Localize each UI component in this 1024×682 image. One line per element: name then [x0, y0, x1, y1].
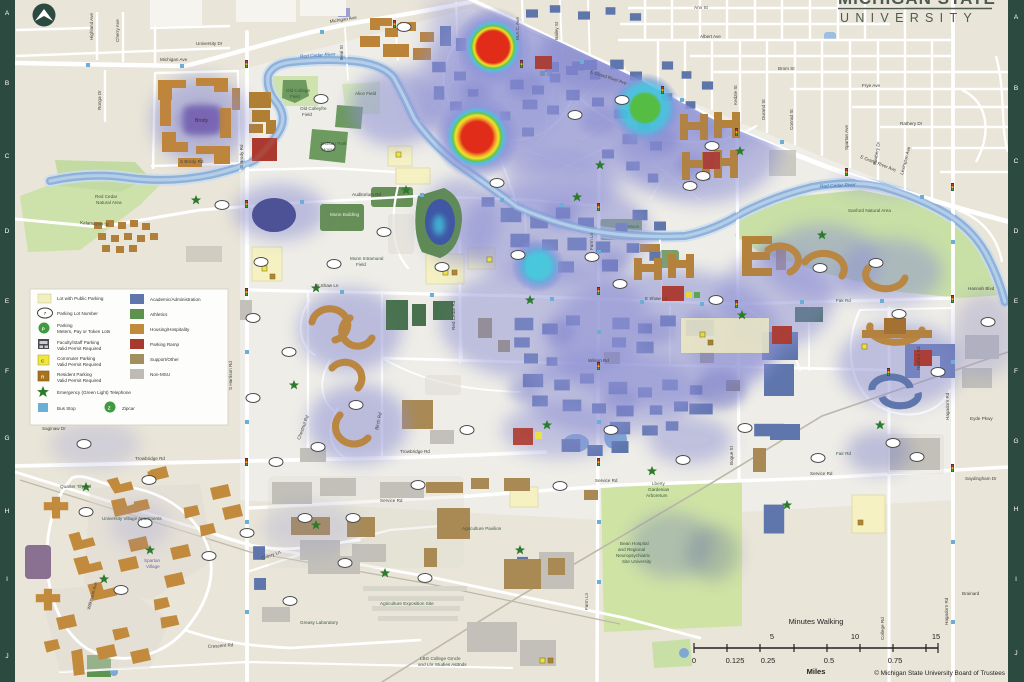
svg-text:Beal St: Beal St	[339, 44, 344, 60]
svg-text:E: E	[5, 298, 10, 305]
svg-text:University Village Apartments: University Village Apartments	[102, 516, 162, 521]
svg-text:Auditorium Rd: Auditorium Rd	[352, 192, 382, 197]
svg-text:P: P	[42, 327, 45, 332]
svg-text:Agriculture Pavilion: Agriculture Pavilion	[462, 526, 502, 531]
svg-text:G: G	[4, 435, 9, 442]
svg-text:B: B	[1014, 85, 1018, 92]
svg-text:© Michigan State University Bo: © Michigan State University Board of Tru…	[874, 669, 1005, 677]
svg-text:Alice Field: Alice Field	[355, 91, 377, 96]
svg-text:7: 7	[44, 311, 47, 316]
svg-text:H: H	[5, 508, 10, 515]
svg-text:House: House	[322, 147, 336, 152]
svg-text:Service Rd: Service Rd	[380, 498, 403, 503]
svg-text:Non-MSU: Non-MSU	[150, 372, 170, 377]
svg-text:Munn Intramural: Munn Intramural	[350, 256, 383, 261]
svg-text:Farm Ln: Farm Ln	[589, 232, 594, 250]
svg-text:Bogue St: Bogue St	[729, 445, 734, 465]
svg-text:Wilson Rd: Wilson Rd	[588, 358, 609, 363]
svg-text:E: E	[1014, 298, 1019, 305]
svg-text:0.125: 0.125	[726, 656, 745, 665]
svg-text:Academic/Administration: Academic/Administration	[150, 297, 201, 302]
svg-text:Emergency (Green Light) Teleph: Emergency (Green Light) Telephone	[57, 390, 131, 395]
svg-text:Site University: Site University	[622, 559, 652, 564]
svg-text:Rathery Dr: Rathery Dr	[900, 121, 923, 126]
svg-text:Greasy Laboratory: Greasy Laboratory	[300, 620, 339, 625]
svg-text:Kedzie St: Kedzie St	[733, 85, 738, 105]
svg-text:5: 5	[770, 632, 774, 641]
svg-text:Parking Ramp: Parking Ramp	[150, 342, 180, 347]
svg-text:A: A	[1014, 14, 1019, 21]
svg-text:MICHIGAN STATE: MICHIGAN STATE	[838, 0, 996, 8]
svg-text:Lot with Public Parking: Lot with Public Parking	[57, 296, 104, 301]
svg-text:E Shaw Ln: E Shaw Ln	[645, 296, 668, 301]
svg-text:Frye Ave: Frye Ave	[862, 83, 880, 88]
svg-text:Jenison Park: Jenison Park	[320, 141, 347, 146]
svg-text:Munn: Munn	[628, 224, 640, 229]
svg-text:Arboretum: Arboretum	[646, 493, 668, 498]
svg-text:Village: Village	[146, 564, 160, 569]
svg-text:Athletics: Athletics	[150, 312, 168, 317]
svg-text:Spartan Ave: Spartan Ave	[844, 125, 849, 150]
svg-text:Parking: Parking	[57, 323, 73, 328]
svg-text:Hannah Blvd: Hannah Blvd	[968, 286, 995, 291]
svg-text:and Lhr Studies Asttnds: and Lhr Studies Asttnds	[418, 662, 467, 667]
svg-text:Bailey St: Bailey St	[554, 21, 559, 40]
svg-text:Field: Field	[356, 262, 366, 267]
svg-text:University Dr: University Dr	[196, 41, 223, 46]
svg-text:College Rd: College Rd	[880, 617, 885, 640]
svg-text:C: C	[5, 153, 10, 160]
svg-text:Brainard: Brainard	[962, 591, 980, 596]
svg-text:A: A	[5, 10, 10, 17]
svg-text:Trowbridge Rd: Trowbridge Rd	[400, 449, 430, 454]
svg-text:UNIVERSITY: UNIVERSITY	[840, 11, 978, 25]
svg-text:Parking Lot Number: Parking Lot Number	[57, 311, 98, 316]
svg-text:and Regional: and Regional	[618, 547, 645, 552]
svg-text:Fair Rd: Fair Rd	[836, 451, 852, 456]
svg-text:S Brody Rd: S Brody Rd	[239, 144, 244, 168]
svg-text:Cherry Ave: Cherry Ave	[115, 19, 120, 42]
svg-text:Farm Ln: Farm Ln	[584, 592, 589, 610]
svg-text:Red Cedar: Red Cedar	[95, 194, 118, 199]
svg-text:Rudford Rd: Rudford Rd	[916, 346, 921, 370]
svg-text:H: H	[1014, 506, 1019, 513]
svg-text:Trowbridge Rd: Trowbridge Rd	[135, 456, 165, 461]
svg-text:S Brody Rd: S Brody Rd	[180, 159, 204, 164]
svg-text:0.5: 0.5	[824, 656, 834, 665]
svg-text:Service Rd: Service Rd	[595, 478, 618, 483]
svg-text:15: 15	[932, 632, 940, 641]
svg-text:Miles: Miles	[807, 667, 826, 676]
svg-text:G: G	[1013, 438, 1018, 445]
svg-text:Valid Permit Required: Valid Permit Required	[57, 346, 102, 351]
svg-text:0.75: 0.75	[888, 656, 903, 665]
svg-text:Quarter Tily Rd: Quarter Tily Rd	[60, 484, 91, 489]
svg-text:Fak Rd: Fak Rd	[836, 298, 851, 303]
svg-text:Saginaw Dr: Saginaw Dr	[42, 426, 66, 431]
svg-text:Hagadorn Rd: Hagadorn Rd	[945, 392, 950, 420]
svg-text:Bus Stop: Bus Stop	[57, 406, 76, 411]
svg-text:Saydingham Dr: Saydingham Dr	[965, 476, 997, 481]
svg-text:Old Colleyfre: Old Colleyfre	[300, 106, 327, 111]
svg-text:F: F	[1014, 368, 1018, 375]
svg-text:F: F	[5, 368, 9, 375]
svg-text:Valid Permit Required: Valid Permit Required	[57, 362, 102, 367]
svg-text:Minutes Walking: Minutes Walking	[789, 617, 844, 626]
svg-text:Gardenias: Gardenias	[648, 487, 670, 492]
svg-text:Faculty/Staff Parking: Faculty/Staff Parking	[57, 340, 100, 345]
svg-text:Valid Permit Required: Valid Permit Required	[57, 378, 102, 383]
svg-text:Lberty: Lberty	[652, 481, 665, 486]
svg-text:D: D	[5, 228, 10, 235]
svg-text:Natural Area: Natural Area	[96, 200, 122, 205]
svg-text:0: 0	[692, 656, 696, 665]
svg-text:LBG College Gmcle: LBG College Gmcle	[420, 656, 461, 661]
svg-text:0.25: 0.25	[761, 656, 776, 665]
svg-text:Agriculture Exposition Site: Agriculture Exposition Site	[380, 601, 434, 606]
svg-text:Neuropsychiatric: Neuropsychiatric	[616, 553, 651, 558]
svg-text:Red Cedar Rd: Red Cedar Rd	[451, 300, 456, 330]
svg-text:Bean Hospital: Bean Hospital	[620, 541, 649, 546]
svg-text:Albert Ave: Albert Ave	[700, 34, 721, 39]
svg-text:Brom St: Brom St	[778, 66, 795, 71]
svg-text:Housing/Hospitality: Housing/Hospitality	[150, 327, 190, 332]
svg-text:I: I	[1015, 576, 1017, 583]
svg-text:Sanford Natural Area: Sanford Natural Area	[848, 208, 891, 213]
svg-text:D: D	[1014, 228, 1019, 235]
svg-text:Durand St: Durand St	[761, 99, 766, 120]
svg-text:Field: Field	[290, 94, 300, 99]
svg-text:Eyde Pkwy: Eyde Pkwy	[970, 416, 993, 421]
svg-text:B: B	[5, 80, 9, 87]
svg-text:10: 10	[851, 632, 859, 641]
svg-text:Meters, Pay or Token Lots: Meters, Pay or Token Lots	[57, 329, 111, 334]
svg-text:Zipcar: Zipcar	[122, 406, 135, 411]
svg-text:Brody: Brody	[195, 118, 209, 124]
svg-text:Michigan Ave: Michigan Ave	[160, 57, 188, 62]
svg-text:W Shaw Ln: W Shaw Ln	[315, 283, 339, 288]
svg-text:Munn Building: Munn Building	[330, 212, 360, 217]
svg-text:J: J	[1014, 650, 1017, 657]
svg-text:Spartan: Spartan	[144, 558, 161, 563]
svg-text:S Harrison Rd: S Harrison Rd	[228, 361, 233, 390]
svg-text:Field: Field	[302, 112, 312, 117]
svg-text:M.A.C. Ave: M.A.C. Ave	[515, 17, 520, 40]
svg-text:Service Rd: Service Rd	[810, 471, 833, 476]
svg-text:C: C	[1014, 158, 1019, 165]
svg-text:Conrad St: Conrad St	[789, 109, 794, 130]
svg-text:J: J	[5, 653, 8, 660]
svg-text:Resident Parking: Resident Parking	[57, 372, 92, 377]
svg-text:Z: Z	[108, 406, 111, 411]
svg-text:Commuter Parking: Commuter Parking	[57, 356, 96, 361]
svg-text:Support/Other: Support/Other	[150, 357, 179, 362]
svg-text:I: I	[6, 576, 8, 583]
svg-text:Old College: Old College	[286, 88, 310, 93]
svg-text:Hagadorn Rd: Hagadorn Rd	[944, 597, 949, 625]
svg-text:Ronga Dr: Ronga Dr	[97, 90, 102, 110]
svg-text:Highland Ave: Highland Ave	[89, 13, 94, 40]
svg-text:Ann St: Ann St	[694, 5, 709, 10]
